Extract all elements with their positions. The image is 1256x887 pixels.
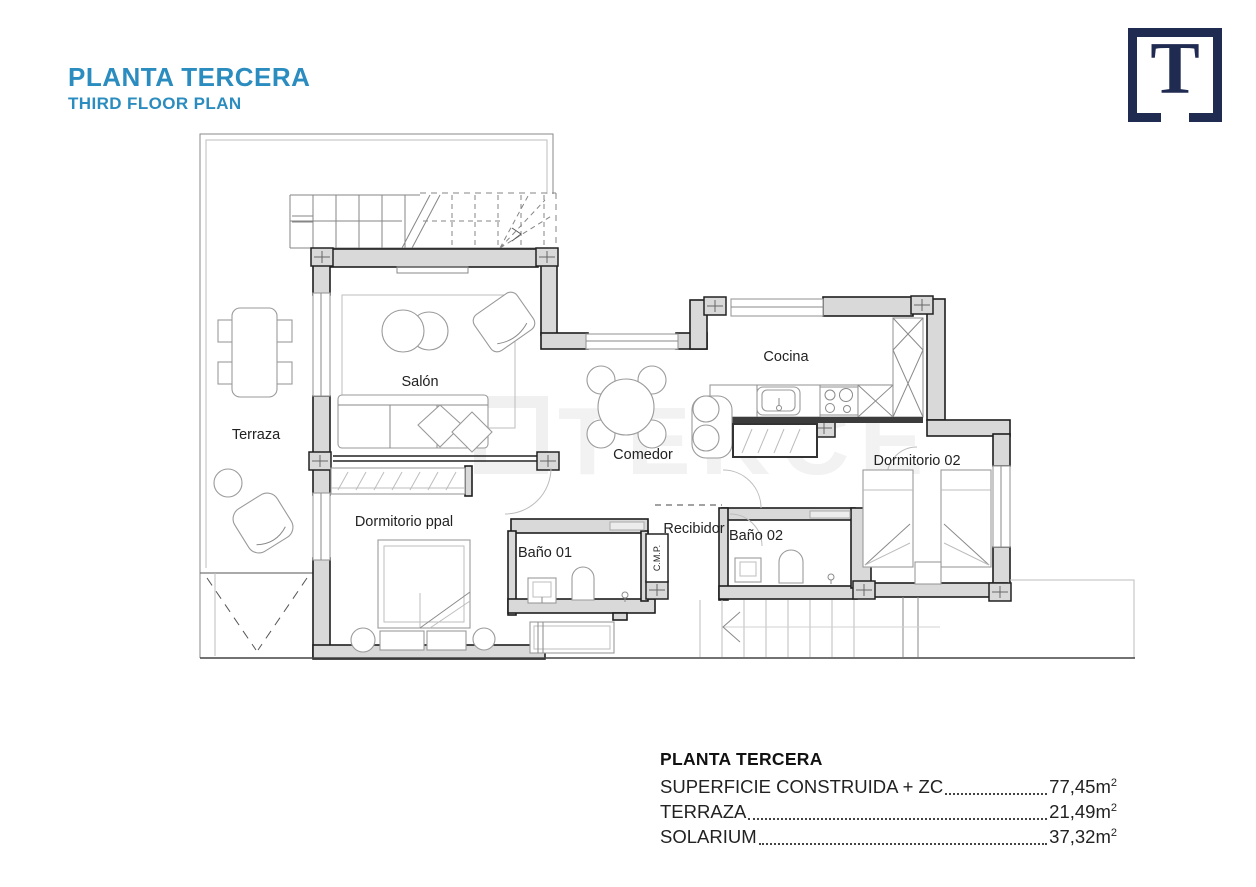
room-label-bano-02: Baño 02: [729, 528, 783, 544]
legend-label: SUPERFICIE CONSTRUIDA + ZC: [660, 775, 943, 800]
legend-label: TERRAZA: [660, 800, 746, 825]
legend-row-superficie: SUPERFICIE CONSTRUIDA + ZC 77,45m2: [660, 775, 1117, 800]
top-staircase: [290, 193, 556, 248]
room-label-cocina: Cocina: [763, 349, 809, 365]
room-label-salon: Salón: [401, 374, 438, 390]
sink-icon: [757, 387, 800, 415]
room-label-dormitorio-02: Dormitorio 02: [873, 453, 960, 469]
room-label-recibidor: Recibidor: [663, 521, 724, 537]
room-label-dormitorio-ppal: Dormitorio ppal: [355, 514, 453, 530]
page: PLANTA TERCERA THIRD FLOOR PLAN T TEKCE: [0, 0, 1256, 887]
salon-furniture: [338, 267, 538, 452]
area-legend: PLANTA TERCERA SUPERFICIE CONSTRUIDA + Z…: [660, 749, 1117, 850]
room-label-bano-01: Baño 01: [518, 545, 572, 561]
legend-value: 21,49m: [1049, 801, 1111, 822]
room-label-comedor: Comedor: [613, 447, 673, 463]
dotted-leader: [945, 793, 1047, 795]
legend-row-solarium: SOLARIUM 37,32m2: [660, 825, 1117, 850]
legend-sup: 2: [1111, 802, 1117, 814]
legend-value: 77,45m: [1049, 776, 1111, 797]
hob-icon: [820, 387, 858, 415]
dotted-leader: [759, 843, 1048, 845]
dotted-leader: [748, 818, 1047, 820]
legend-label: SOLARIUM: [660, 825, 757, 850]
legend-sup: 2: [1111, 777, 1117, 789]
room-label-cmp: C.M.P.: [652, 545, 662, 571]
legend-row-terraza: TERRAZA 21,49m2: [660, 800, 1117, 825]
legend-title: PLANTA TERCERA: [660, 749, 1117, 770]
room-label-terraza: Terraza: [232, 427, 281, 443]
legend-value: 37,32m: [1049, 826, 1111, 847]
legend-sup: 2: [1111, 827, 1117, 839]
